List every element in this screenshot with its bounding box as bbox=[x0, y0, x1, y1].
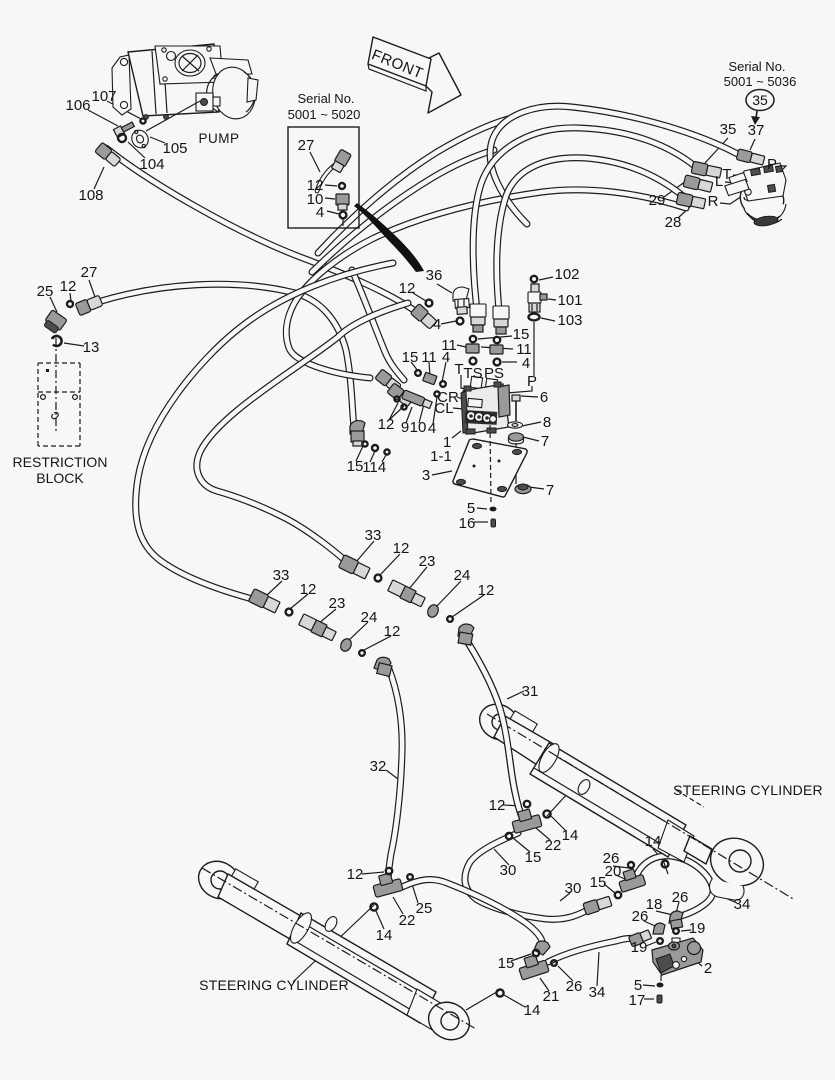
svg-text:24: 24 bbox=[454, 567, 471, 584]
svg-text:P: P bbox=[527, 373, 537, 390]
svg-text:T: T bbox=[454, 361, 463, 378]
svg-text:32: 32 bbox=[370, 758, 387, 775]
svg-text:107: 107 bbox=[91, 88, 116, 105]
svg-text:104: 104 bbox=[139, 156, 164, 173]
svg-text:L: L bbox=[715, 173, 723, 190]
svg-text:26: 26 bbox=[672, 889, 689, 906]
svg-text:25: 25 bbox=[416, 900, 433, 917]
svg-text:33: 33 bbox=[273, 567, 290, 584]
svg-text:7: 7 bbox=[541, 433, 549, 450]
svg-text:22: 22 bbox=[399, 912, 416, 929]
svg-text:11: 11 bbox=[362, 459, 378, 476]
svg-text:26: 26 bbox=[566, 978, 583, 995]
svg-text:34: 34 bbox=[589, 984, 606, 1001]
svg-text:4: 4 bbox=[316, 204, 324, 221]
svg-text:5001 ~ 5036: 5001 ~ 5036 bbox=[724, 74, 797, 89]
svg-text:103: 103 bbox=[557, 312, 582, 329]
svg-text:12: 12 bbox=[399, 280, 416, 297]
svg-text:19: 19 bbox=[689, 920, 706, 937]
svg-text:9: 9 bbox=[401, 419, 409, 436]
svg-text:37: 37 bbox=[748, 122, 765, 139]
svg-text:R: R bbox=[708, 193, 719, 210]
svg-text:31: 31 bbox=[522, 683, 539, 700]
svg-text:35: 35 bbox=[720, 121, 737, 138]
svg-text:STEERING CYLINDER: STEERING CYLINDER bbox=[673, 782, 823, 798]
svg-text:12: 12 bbox=[60, 278, 77, 295]
svg-text:Serial No.: Serial No. bbox=[728, 59, 785, 74]
svg-text:30: 30 bbox=[500, 862, 517, 879]
svg-text:5001 ~ 5020: 5001 ~ 5020 bbox=[288, 107, 361, 122]
svg-text:PUMP: PUMP bbox=[198, 131, 239, 146]
svg-text:20: 20 bbox=[605, 863, 622, 880]
svg-text:12: 12 bbox=[300, 581, 317, 598]
svg-text:P: P bbox=[767, 156, 777, 173]
svg-text:17: 17 bbox=[629, 992, 646, 1009]
svg-text:13: 13 bbox=[83, 339, 100, 356]
svg-text:4: 4 bbox=[433, 316, 441, 333]
svg-text:19: 19 bbox=[631, 939, 648, 956]
svg-text:33: 33 bbox=[365, 527, 382, 544]
svg-text:Serial No.: Serial No. bbox=[297, 91, 354, 106]
svg-text:27: 27 bbox=[81, 264, 98, 281]
svg-text:3: 3 bbox=[422, 467, 430, 484]
svg-text:16: 16 bbox=[459, 515, 476, 532]
svg-text:26: 26 bbox=[632, 908, 649, 925]
svg-text:11: 11 bbox=[421, 349, 437, 366]
svg-text:15: 15 bbox=[525, 849, 542, 866]
svg-text:12: 12 bbox=[347, 866, 364, 883]
svg-text:8: 8 bbox=[543, 414, 551, 431]
svg-text:12: 12 bbox=[393, 540, 410, 557]
svg-text:6: 6 bbox=[540, 389, 548, 406]
svg-text:4: 4 bbox=[428, 420, 436, 437]
svg-text:4: 4 bbox=[442, 349, 450, 366]
svg-text:15: 15 bbox=[347, 458, 364, 475]
svg-text:BLOCK: BLOCK bbox=[36, 470, 84, 486]
svg-text:PS: PS bbox=[484, 365, 504, 382]
svg-text:27: 27 bbox=[298, 137, 315, 154]
svg-text:25: 25 bbox=[37, 283, 54, 300]
svg-text:21: 21 bbox=[543, 988, 560, 1005]
svg-text:2: 2 bbox=[704, 960, 712, 977]
svg-text:12: 12 bbox=[489, 797, 506, 814]
svg-text:14: 14 bbox=[562, 827, 579, 844]
svg-text:TS: TS bbox=[463, 365, 482, 382]
svg-text:29: 29 bbox=[649, 192, 666, 209]
svg-text:15: 15 bbox=[498, 955, 515, 972]
svg-text:STEERING CYLINDER: STEERING CYLINDER bbox=[199, 977, 349, 993]
svg-text:36: 36 bbox=[426, 267, 443, 284]
svg-text:1-1: 1-1 bbox=[430, 448, 452, 465]
svg-text:14: 14 bbox=[524, 1002, 541, 1019]
svg-text:30: 30 bbox=[565, 880, 582, 897]
svg-text:22: 22 bbox=[545, 837, 562, 854]
svg-text:23: 23 bbox=[419, 553, 436, 570]
svg-text:34: 34 bbox=[734, 896, 751, 913]
svg-text:4: 4 bbox=[522, 355, 530, 372]
svg-text:14: 14 bbox=[645, 833, 662, 850]
svg-text:12: 12 bbox=[384, 623, 401, 640]
svg-text:14: 14 bbox=[376, 927, 393, 944]
svg-text:4: 4 bbox=[378, 459, 386, 476]
svg-text:12: 12 bbox=[378, 416, 395, 433]
svg-text:CL: CL bbox=[434, 400, 453, 417]
svg-text:35: 35 bbox=[752, 92, 768, 108]
svg-text:105: 105 bbox=[162, 140, 187, 157]
svg-text:10: 10 bbox=[410, 419, 427, 436]
svg-text:108: 108 bbox=[78, 187, 103, 204]
svg-text:101: 101 bbox=[557, 292, 582, 309]
svg-text:102: 102 bbox=[554, 266, 579, 283]
svg-text:7: 7 bbox=[546, 482, 554, 499]
svg-text:RESTRICTION: RESTRICTION bbox=[13, 454, 108, 470]
svg-text:12: 12 bbox=[478, 582, 495, 599]
svg-text:106: 106 bbox=[65, 97, 90, 114]
svg-text:T: T bbox=[722, 166, 731, 183]
svg-text:28: 28 bbox=[665, 214, 682, 231]
svg-text:23: 23 bbox=[329, 595, 346, 612]
svg-text:24: 24 bbox=[361, 609, 378, 626]
svg-text:15: 15 bbox=[402, 349, 419, 366]
